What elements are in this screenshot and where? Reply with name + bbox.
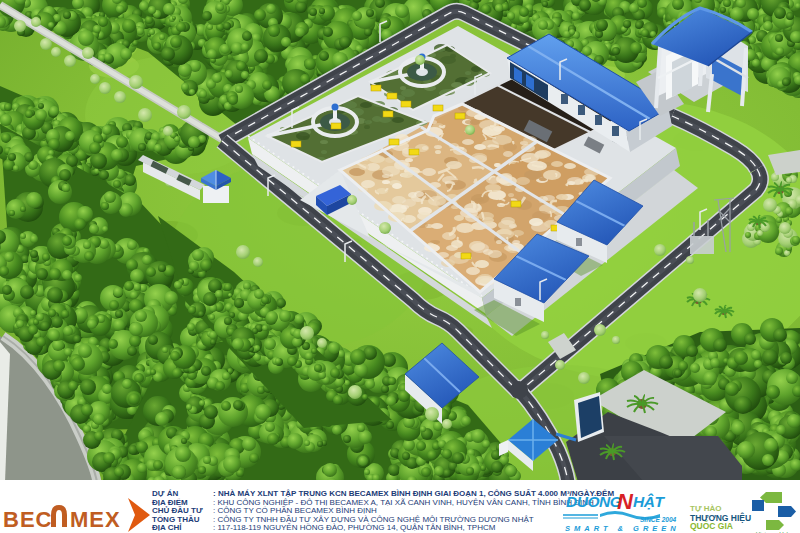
svg-text:BEC: BEC [3,507,52,532]
svg-text:SINCE 2004: SINCE 2004 [640,516,677,523]
svg-text:MEX: MEX [70,507,121,532]
svg-text:HẬT: HẬT [633,493,665,510]
svg-text:SMART & GREEN: SMART & GREEN [565,524,680,533]
svg-text:DUONG: DUONG [566,493,622,510]
svg-text:N: N [617,489,634,514]
